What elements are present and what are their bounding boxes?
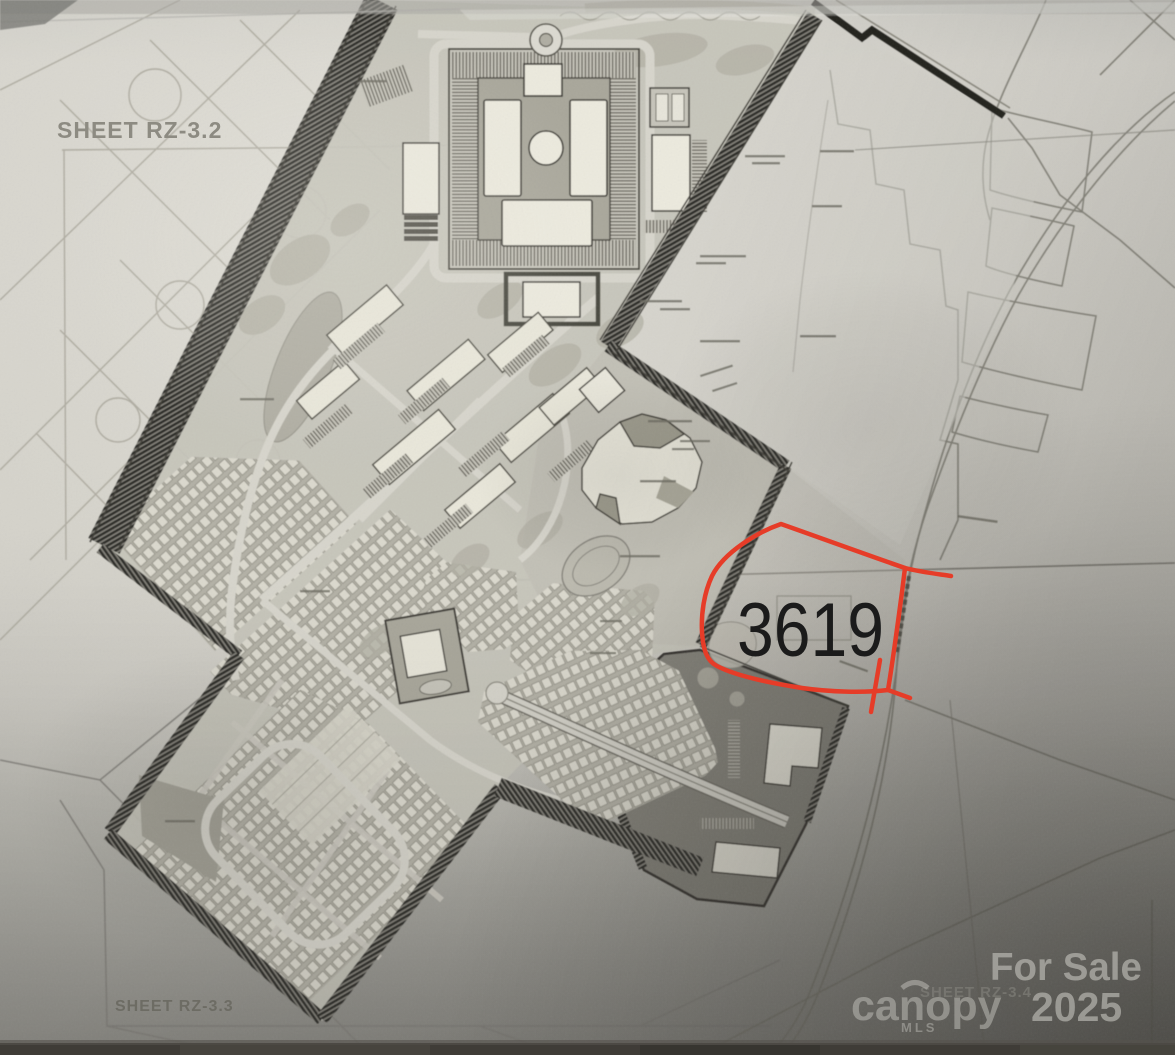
svg-text:MLS: MLS	[901, 1020, 937, 1035]
svg-text:2025: 2025	[1031, 984, 1122, 1030]
svg-text:3619: 3619	[737, 588, 884, 673]
svg-text:SHEET RZ-3.2: SHEET RZ-3.2	[57, 117, 222, 143]
svg-text:For Sale: For Sale	[990, 946, 1142, 989]
svg-text:SHEET RZ-3.3: SHEET RZ-3.3	[115, 998, 234, 1015]
